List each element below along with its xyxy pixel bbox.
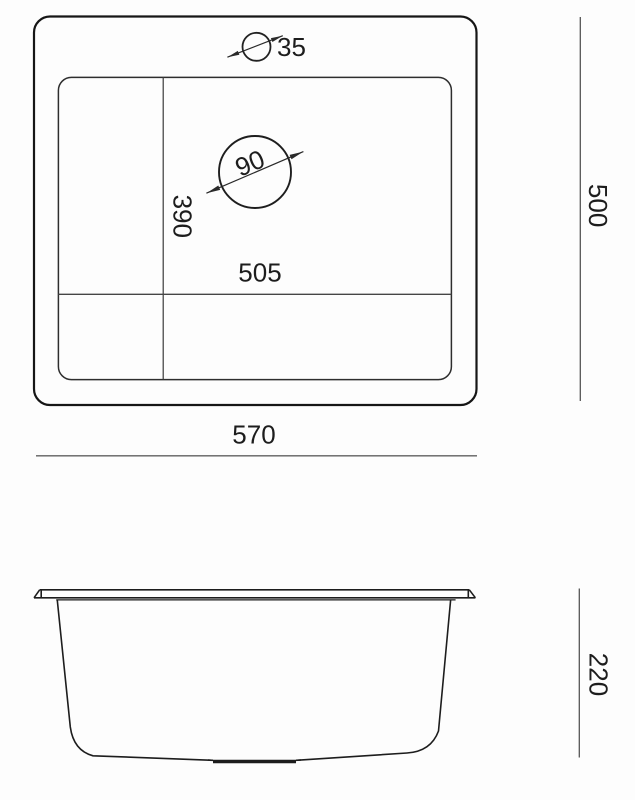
svg-text:390: 390 [168, 195, 198, 238]
svg-text:570: 570 [232, 420, 275, 450]
svg-text:505: 505 [238, 258, 281, 288]
svg-text:90: 90 [231, 144, 269, 183]
svg-text:220: 220 [583, 653, 613, 696]
svg-text:35: 35 [277, 32, 306, 62]
svg-text:500: 500 [583, 184, 613, 227]
